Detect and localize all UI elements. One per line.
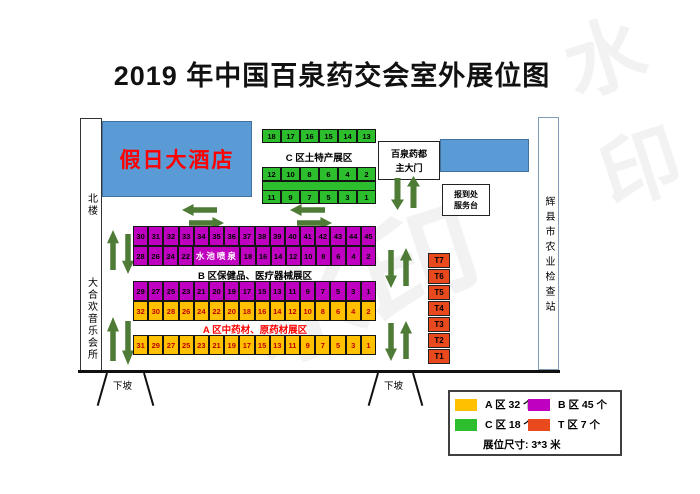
ramp-line: [143, 373, 154, 406]
booth-t: T2: [428, 333, 450, 348]
b-zone-label: B 区保健品、医疗器械展区: [155, 268, 355, 282]
booth-a: 6: [330, 301, 345, 321]
c-zone-row-bottom: 1197531: [262, 190, 376, 204]
left-arrow-icon: [182, 204, 217, 216]
downhill-label-left: 下坡: [113, 378, 132, 392]
booth-b: 39: [270, 226, 285, 246]
ground-line: [78, 370, 560, 373]
booth-a: 9: [300, 335, 315, 355]
legend-swatch-t: [528, 419, 550, 431]
hotel-block: 假日大酒店: [102, 121, 252, 197]
booth-c: 12: [262, 167, 281, 181]
registration-box: 报到处 服务台: [442, 184, 490, 216]
booth-b: 27: [148, 281, 163, 301]
booth-c: 7: [300, 190, 319, 204]
booth-c: 17: [281, 129, 300, 143]
booth-b: 1: [361, 281, 376, 301]
booth-b: 23: [179, 281, 194, 301]
booth-b: 15: [255, 281, 270, 301]
booth-b: 14: [271, 246, 286, 266]
booth-c: 15: [319, 129, 338, 143]
left-building-strip: 北楼 大合欢音乐会所: [80, 118, 102, 372]
legend-label-b: B 区 45 个: [558, 397, 607, 412]
booth-a: 5: [330, 335, 345, 355]
booth-b: 43: [330, 226, 345, 246]
booth-t: T4: [428, 301, 450, 316]
legend-label-a: A 区 32 个: [485, 397, 534, 412]
booth-a: 11: [285, 335, 300, 355]
main-gate-line1: 百泉药都: [391, 147, 427, 161]
booth-a: 14: [270, 301, 285, 321]
booth-t: T6: [428, 269, 450, 284]
registration-line2: 服务台: [454, 200, 478, 211]
north-building-label: 北楼: [84, 193, 99, 217]
legend-swatch-a: [455, 399, 477, 411]
booth-a: 13: [270, 335, 285, 355]
booth-a: 7: [315, 335, 330, 355]
b-zone-row-1: 30313233343536373839404142434445: [133, 226, 376, 246]
booth-b: 25: [163, 281, 178, 301]
booth-b: 12: [286, 246, 301, 266]
hotel-label: 假日大酒店: [103, 122, 251, 196]
booth-a: 22: [209, 301, 224, 321]
downhill-label-right: 下坡: [384, 378, 403, 392]
inspection-station-label: 辉县市农业检查站: [541, 196, 556, 316]
booth-b: 13: [270, 281, 285, 301]
booth-a: 3: [346, 335, 361, 355]
booth-b: 8: [316, 246, 331, 266]
booth-a: 10: [300, 301, 315, 321]
fountain-label: 水池喷泉: [193, 246, 240, 266]
booth-a: 15: [255, 335, 270, 355]
booth-b: 2: [361, 246, 376, 266]
booth-a: 18: [239, 301, 254, 321]
up-arrow-icon: [107, 317, 119, 361]
ramp-line: [97, 373, 108, 406]
up-arrow-icon: [400, 321, 412, 359]
legend-item-b: B 区 45 个: [528, 397, 607, 412]
booth-c: 13: [357, 129, 376, 143]
main-gate-line2: 主大门: [395, 161, 422, 175]
c-zone-row-mid: 12108642: [262, 167, 376, 181]
down-arrow-icon: [385, 250, 397, 288]
booth-a: 19: [224, 335, 239, 355]
booth-a: 20: [224, 301, 239, 321]
inspection-station-strip: 辉县市农业检查站: [538, 117, 559, 370]
booth-b: 32: [163, 226, 178, 246]
booth-b: 17: [239, 281, 254, 301]
booth-a: 16: [255, 301, 270, 321]
booth-b: 19: [224, 281, 239, 301]
booth-b: 7: [315, 281, 330, 301]
booth-b: 11: [285, 281, 300, 301]
booth-c: 16: [300, 129, 319, 143]
booth-t: T3: [428, 317, 450, 332]
legend-item-t: T 区 7 个: [528, 417, 600, 432]
booth-c: 5: [319, 190, 338, 204]
booth-b: 33: [179, 226, 194, 246]
booth-a: 28: [163, 301, 178, 321]
booth-b: 4: [346, 246, 361, 266]
booth-a: 25: [179, 335, 194, 355]
c-zone-label: C 区土特产展区: [252, 150, 386, 164]
booth-c: 8: [300, 167, 319, 181]
legend-item-a: A 区 32 个: [455, 397, 534, 412]
booth-a: 27: [163, 335, 178, 355]
booth-a: 4: [346, 301, 361, 321]
up-arrow-icon: [400, 248, 412, 286]
booth-b: 22: [178, 246, 193, 266]
booth-b: 38: [255, 226, 270, 246]
a-zone-label: A 区中药材、原药材展区: [150, 322, 360, 336]
down-arrow-icon: [385, 323, 397, 361]
up-arrow-icon: [407, 176, 420, 208]
a-zone-row-2: 312927252321191715131197531: [133, 335, 376, 355]
booth-a: 24: [194, 301, 209, 321]
booth-b: 21: [194, 281, 209, 301]
booth-b: 42: [315, 226, 330, 246]
booth-a: 8: [315, 301, 330, 321]
booth-b: 35: [209, 226, 224, 246]
booth-b: 31: [148, 226, 163, 246]
booth-a: 30: [148, 301, 163, 321]
b-zone-row-2: 28262422 水池喷泉 18161412108642: [133, 246, 376, 266]
ramp-line: [412, 373, 423, 406]
booth-a: 26: [179, 301, 194, 321]
booth-c: 1: [357, 190, 376, 204]
booth-b: 28: [133, 246, 148, 266]
booth-a: 1: [361, 335, 376, 355]
registration-line1: 报到处: [454, 189, 478, 200]
legend-label-t: T 区 7 个: [558, 417, 600, 432]
booth-a: 12: [285, 301, 300, 321]
legend-label-c: C 区 18 个: [485, 417, 534, 432]
legend-item-c: C 区 18 个: [455, 417, 534, 432]
booth-a: 32: [133, 301, 148, 321]
booth-c: 14: [338, 129, 357, 143]
booth-b: 36: [224, 226, 239, 246]
booth-c: 11: [262, 190, 281, 204]
booth-b: 30: [133, 226, 148, 246]
left-arrow-icon: [290, 204, 325, 216]
booth-a: 21: [209, 335, 224, 355]
booth-a: 17: [239, 335, 254, 355]
booth-c: 4: [338, 167, 357, 181]
booth-a: 31: [133, 335, 148, 355]
booth-c: 10: [281, 167, 300, 181]
b-zone-row-2-right: 18161412108642: [240, 246, 376, 266]
booth-b: 16: [256, 246, 271, 266]
booth-b: 26: [148, 246, 163, 266]
up-arrow-icon: [107, 230, 119, 270]
booth-c: 2: [357, 167, 376, 181]
booth-b: 24: [163, 246, 178, 266]
a-zone-row-1: 3230282624222018161412108642: [133, 301, 376, 321]
booth-a: 23: [194, 335, 209, 355]
booth-b: 20: [209, 281, 224, 301]
booth-b: 6: [331, 246, 346, 266]
booth-b: 40: [285, 226, 300, 246]
legend-box: A 区 32 个 B 区 45 个 C 区 18 个 T 区 7 个 展位尺寸:…: [448, 390, 622, 456]
booth-c: 3: [338, 190, 357, 204]
blue-building-block: [440, 139, 529, 172]
legend-swatch-c: [455, 419, 477, 431]
booth-b: 10: [301, 246, 316, 266]
booth-t: T7: [428, 253, 450, 268]
page-title: 2019 年中国百泉药交会室外展位图: [0, 54, 664, 93]
booth-b: 29: [133, 281, 148, 301]
booth-c: 9: [281, 190, 300, 204]
booth-c: 6: [319, 167, 338, 181]
booth-b: 9: [300, 281, 315, 301]
b-zone-row-3: 292725232120191715131197531: [133, 281, 376, 301]
booth-b: 18: [240, 246, 255, 266]
booth-a: 29: [148, 335, 163, 355]
t-zone-column: T7T6T5T4T3T2T1: [428, 253, 450, 365]
booth-c: 18: [262, 129, 281, 143]
booth-t: T1: [428, 349, 450, 364]
booth-b: 3: [346, 281, 361, 301]
booth-t: T5: [428, 285, 450, 300]
c-zone-row-top: 181716151413: [262, 129, 376, 143]
main-gate-box: 百泉药都 主大门: [378, 141, 440, 180]
booth-b: 41: [300, 226, 315, 246]
music-club-label: 大合欢音乐会所: [84, 277, 99, 361]
booth-b: 34: [194, 226, 209, 246]
booth-b: 37: [239, 226, 254, 246]
floorplan-canvas: 水印 水印 2019 年中国百泉药交会室外展位图 北楼 大合欢音乐会所 假日大酒…: [0, 0, 700, 494]
booth-b: 45: [361, 226, 376, 246]
legend-swatch-b: [528, 399, 550, 411]
down-arrow-icon: [391, 178, 404, 210]
booth-a: 2: [361, 301, 376, 321]
legend-size-note: 展位尺寸: 3*3 米: [483, 437, 561, 452]
watermark-corner: 水印: [547, 0, 700, 230]
booth-b: 44: [346, 226, 361, 246]
booth-b: 5: [330, 281, 345, 301]
b-zone-row-2-left: 28262422: [133, 246, 193, 266]
ramp-line: [368, 373, 379, 406]
